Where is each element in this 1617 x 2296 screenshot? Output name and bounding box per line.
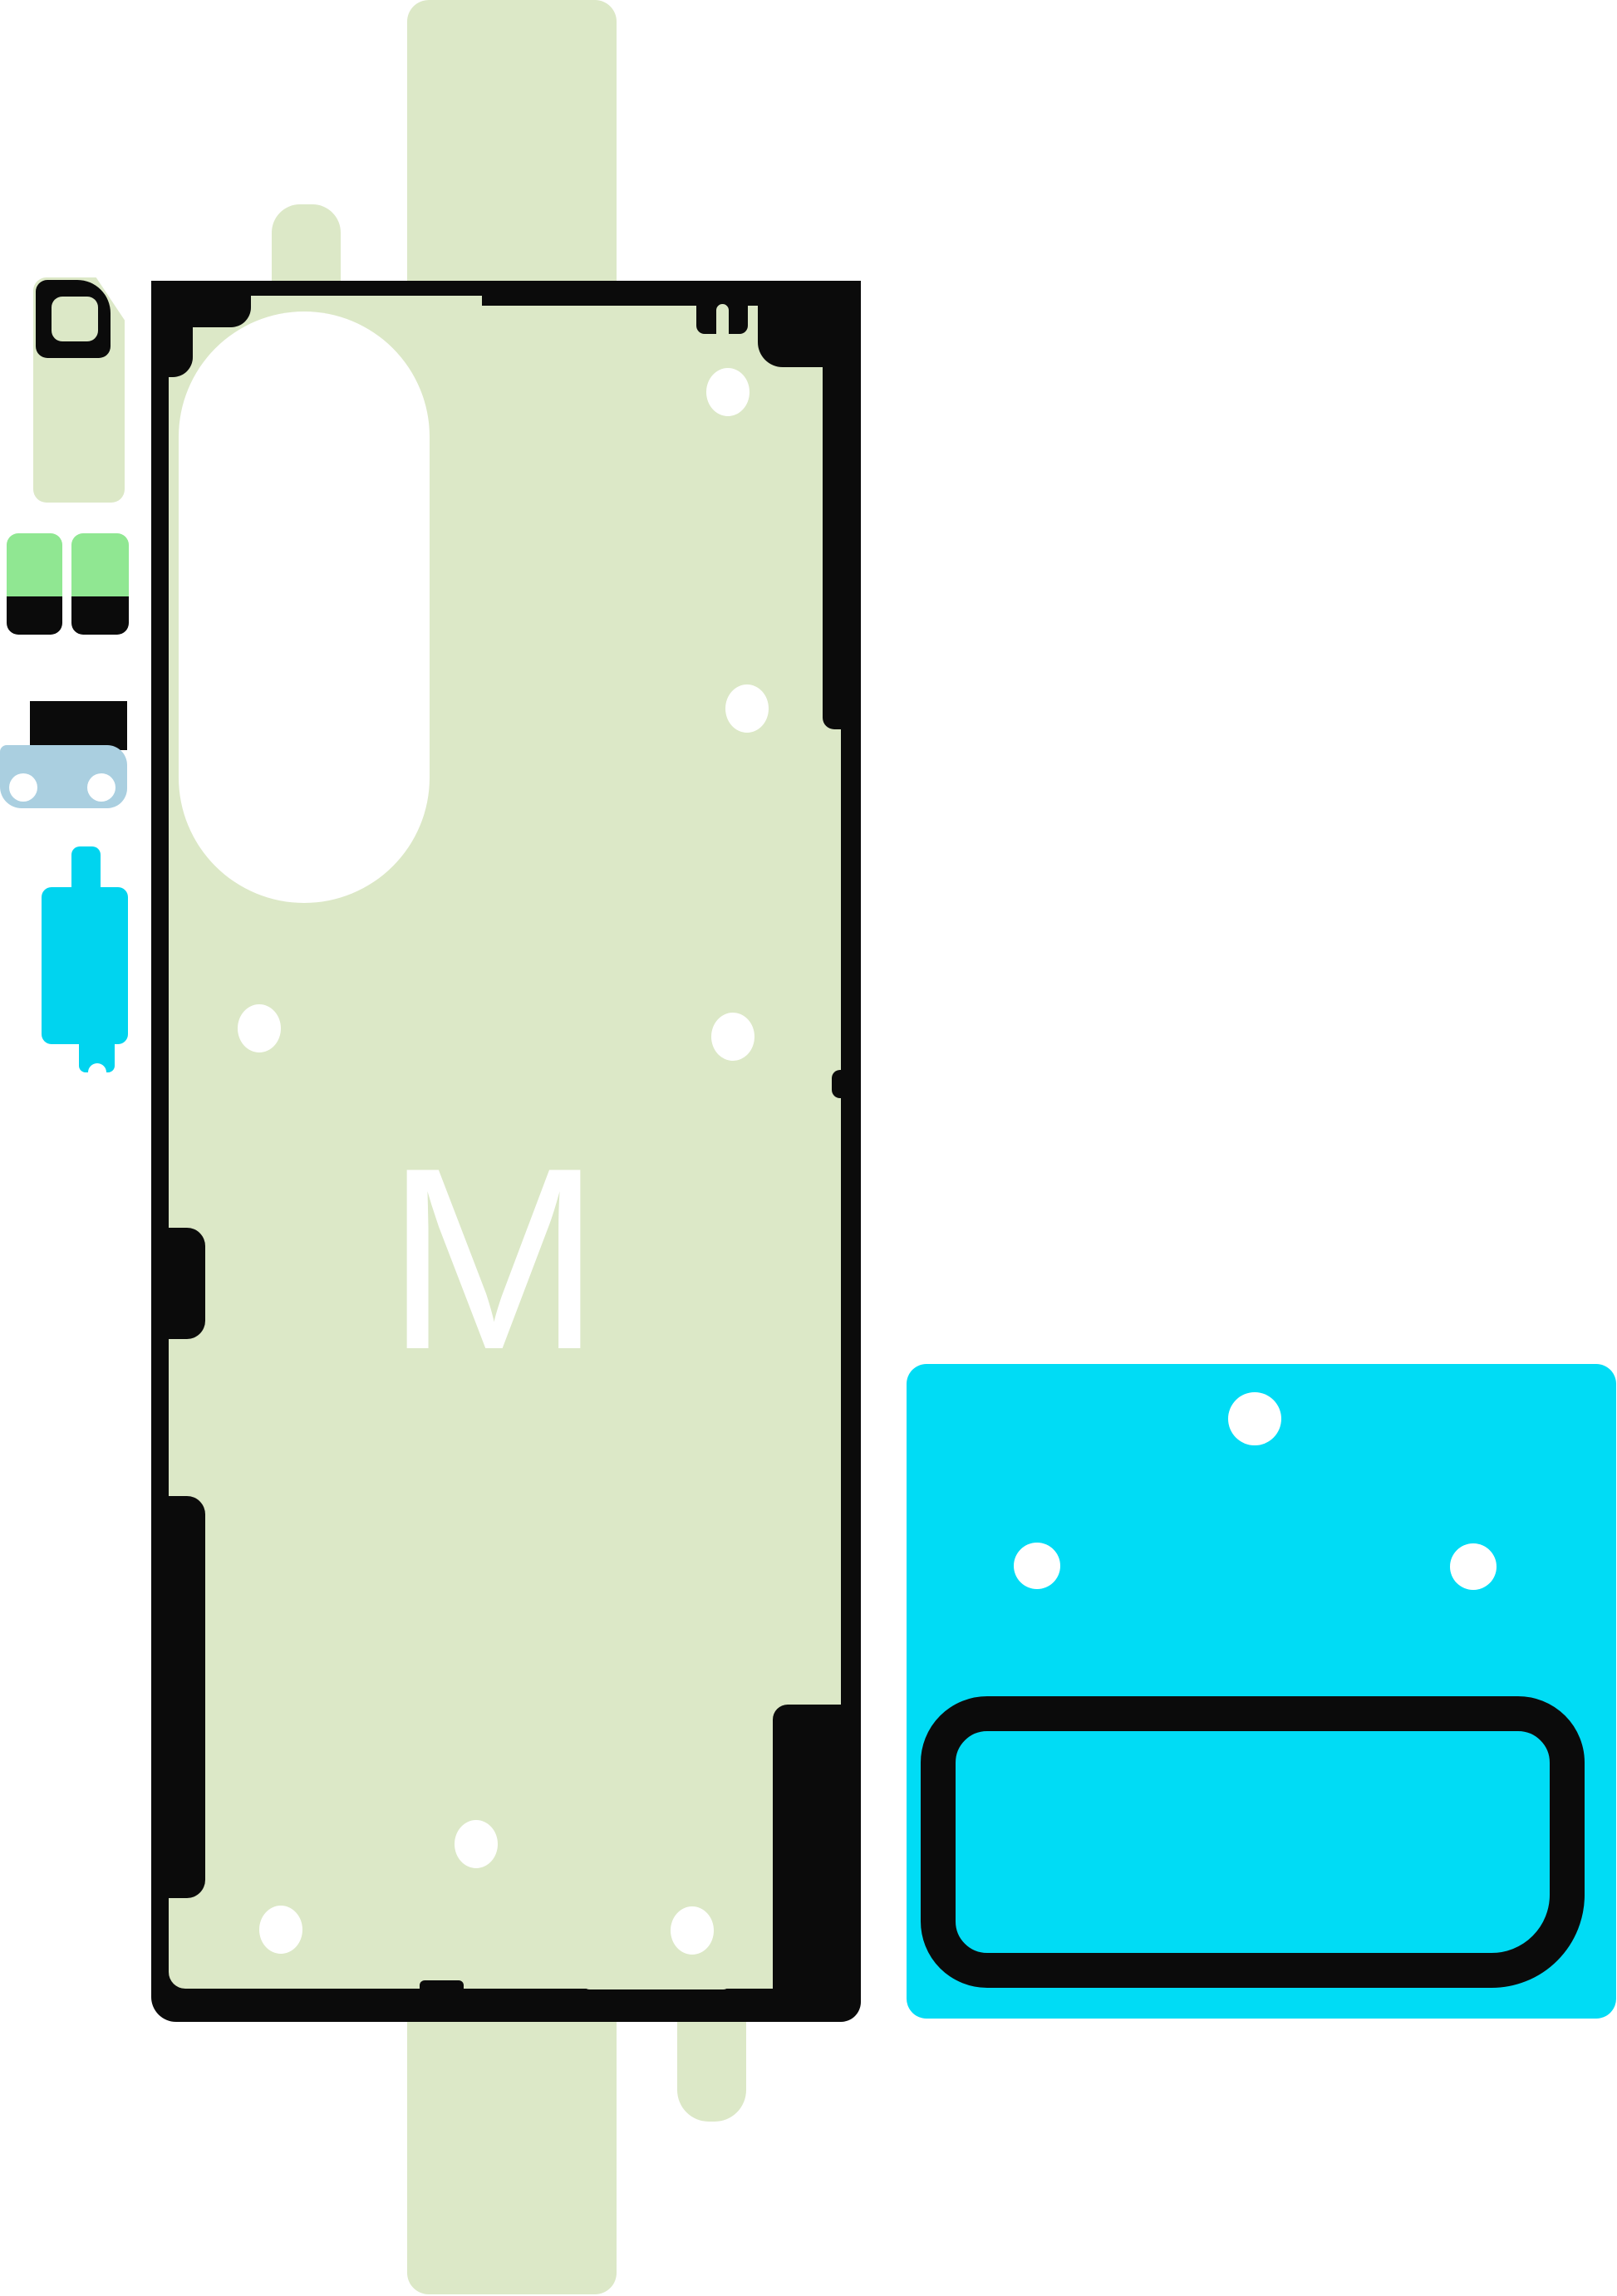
- border-corner-top-left-b: [151, 281, 193, 377]
- sheet-hole: [725, 684, 769, 733]
- sheet-hole: [706, 368, 750, 416]
- square-hole-left: [1014, 1543, 1060, 1589]
- sheet-watermark-letter: M: [386, 1130, 602, 1389]
- border-thick-right-upper: [823, 281, 861, 729]
- border-notch-right-middle: [832, 1070, 861, 1098]
- border-tab-bottom: [420, 1980, 464, 1990]
- adhesive-square-left: [7, 533, 62, 635]
- button-piece-body: [42, 887, 128, 1044]
- sheet-hole: [711, 1013, 754, 1061]
- square-hole-top: [1228, 1392, 1281, 1445]
- back-cover-adhesive-sheet: M: [151, 281, 861, 2022]
- border-thick-right-bottom: [773, 1705, 861, 2022]
- border-thick-left-lower: [151, 1496, 205, 1898]
- button-adhesive-piece: [42, 846, 128, 1072]
- adhesive-bar-black: [30, 701, 127, 750]
- button-piece-notch: [88, 1063, 106, 1082]
- adhesive-square-green-part: [71, 533, 129, 596]
- square-hole-right: [1450, 1543, 1497, 1590]
- sensor-adhesive-piece: [0, 745, 127, 808]
- adhesive-kit-illustration: M: [0, 0, 1617, 2296]
- gasket-outline: [921, 1696, 1585, 1988]
- adhesive-square-black-part: [71, 596, 129, 635]
- sheet-hole: [455, 1820, 498, 1868]
- border-thick-left-upper: [151, 1228, 205, 1339]
- camera-cutout-window: [179, 312, 430, 903]
- border-teeth-valley: [716, 304, 729, 334]
- adhesive-square-black-part: [7, 596, 62, 635]
- sheet-hole: [671, 1906, 714, 1955]
- sheet-hole: [238, 1004, 281, 1052]
- camera-ring-adhesive-piece: [33, 277, 125, 503]
- adhesive-square-right: [71, 533, 129, 635]
- sheet-hole: [259, 1906, 302, 1954]
- border-thin-bottom-section: [582, 1975, 731, 1989]
- adhesive-square-green-part: [7, 533, 62, 596]
- camera-ring-hole: [52, 297, 98, 341]
- sensor-hole-right: [87, 773, 116, 802]
- camera-ring-outline: [36, 280, 111, 358]
- sensor-hole-left: [9, 773, 37, 802]
- display-adhesive-square: [907, 1364, 1616, 2019]
- button-piece-top-tab: [71, 846, 101, 892]
